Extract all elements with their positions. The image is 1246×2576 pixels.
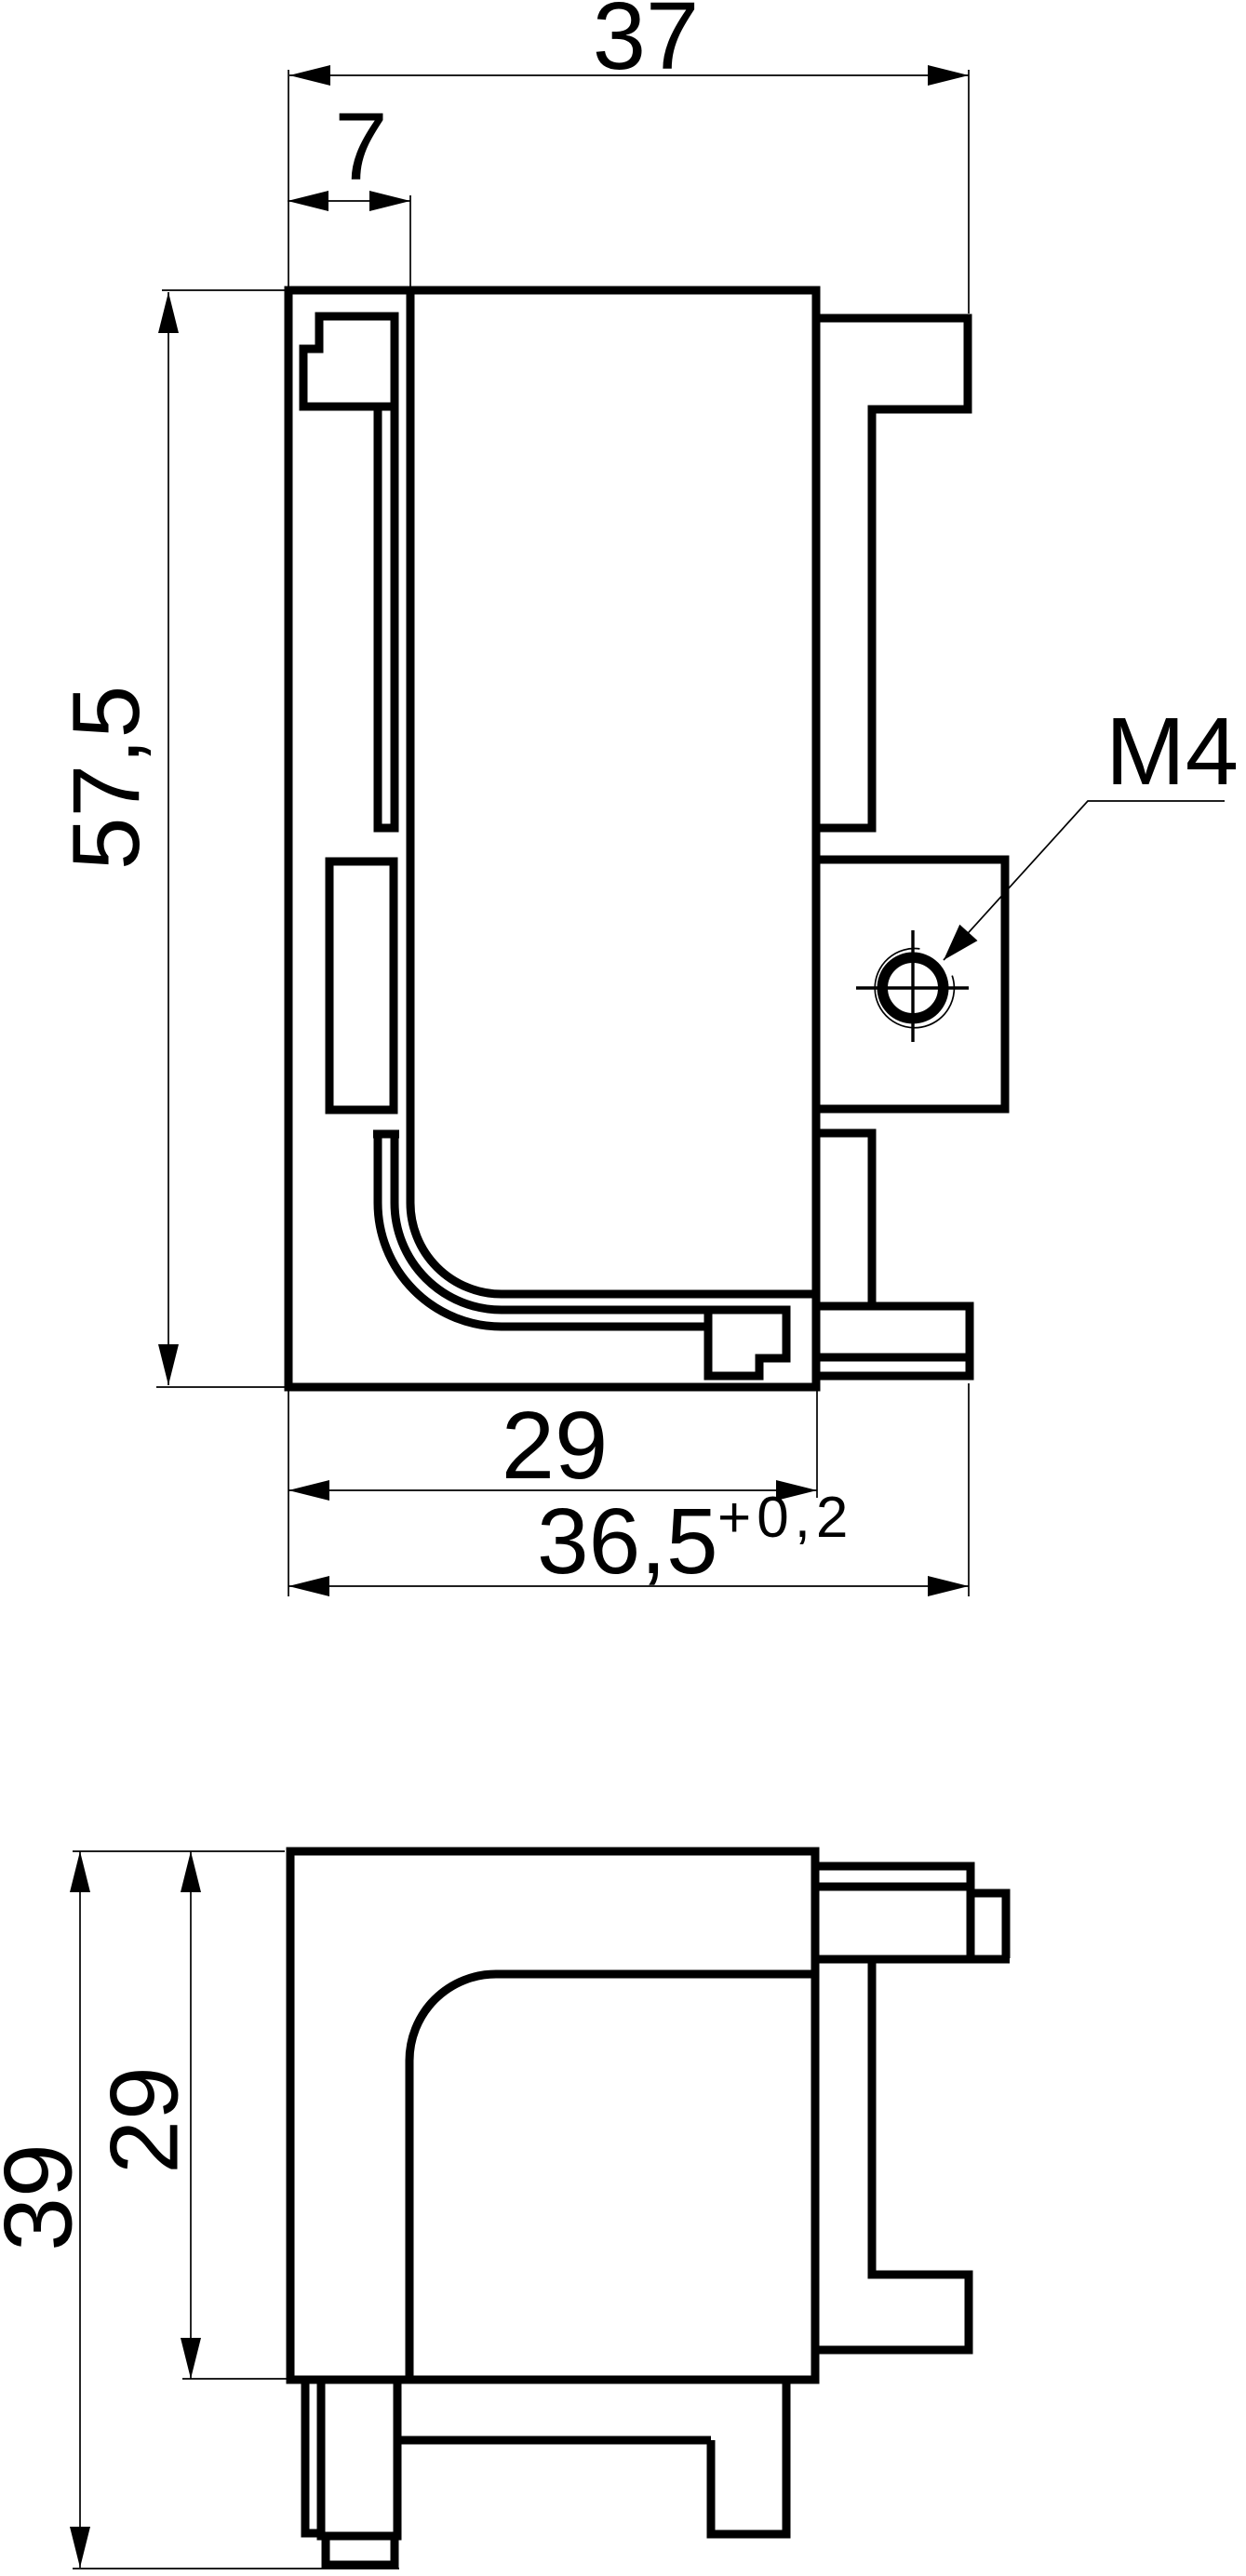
svg-text:29: 29	[502, 1392, 609, 1499]
svg-text:57,5: 57,5	[53, 686, 159, 871]
svg-text:7: 7	[334, 93, 387, 200]
svg-text:M4: M4	[1105, 698, 1239, 805]
svg-text:+0,2: +0,2	[717, 1486, 853, 1550]
svg-text:29: 29	[90, 2066, 198, 2174]
svg-text:36,5: 36,5	[537, 1489, 718, 1594]
svg-text:37: 37	[593, 0, 700, 89]
svg-text:39: 39	[0, 2143, 92, 2251]
